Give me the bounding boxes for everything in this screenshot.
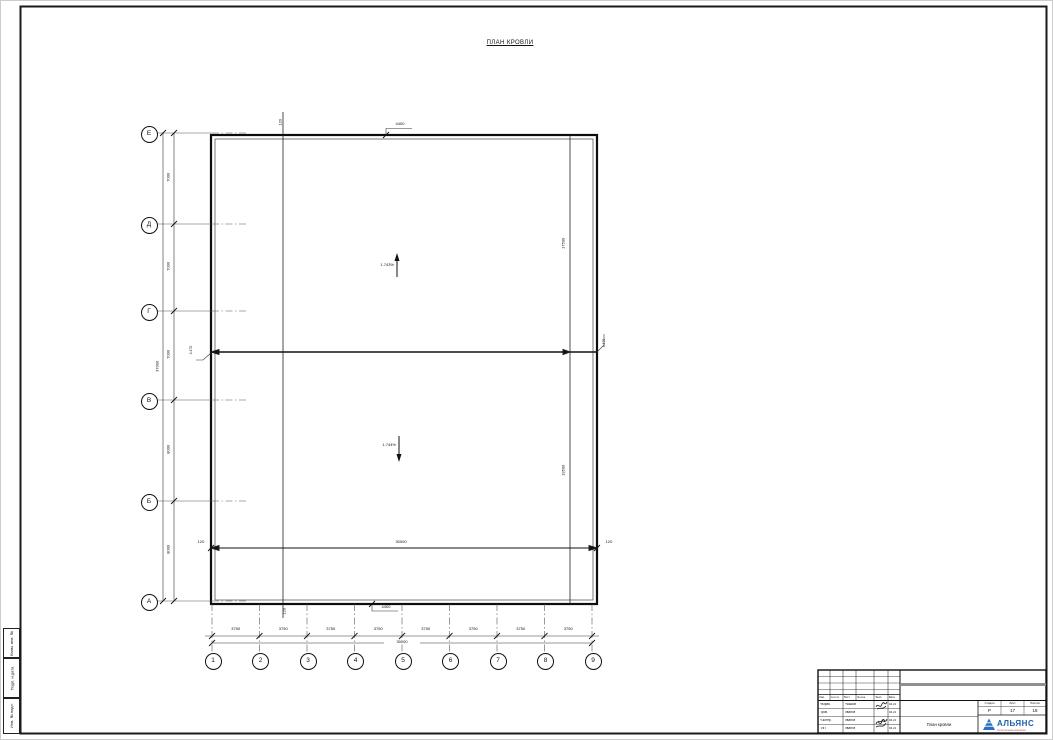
ridge-mark-right: 4.470	[602, 331, 606, 355]
stamp-role: ГИП	[820, 727, 826, 730]
stamp-date: 04.21	[889, 719, 896, 722]
dim-label-left-chain: 7000	[167, 339, 172, 369]
axis-bubble-left: Д	[141, 217, 158, 234]
sheet-title: ПЛАН КРОВЛИ	[440, 40, 580, 46]
stamp-list-value: 17	[1001, 709, 1024, 714]
leader-label-top: 4400	[388, 122, 412, 127]
stamp-role: Разраб.	[820, 703, 831, 706]
stamp-drawing-title: План кровли	[900, 723, 978, 727]
dim-label-bottom-chain: 3750	[450, 627, 498, 632]
drawing-sheet: ПЛАН КРОВЛИ Е Д Г В Б А 1 2 3 4 5 6 7 8 …	[0, 0, 1053, 740]
axis-bubble-bottom: 7	[490, 653, 507, 670]
margin-label: Взам. инв. №	[9, 631, 14, 656]
dim-label-offset: 120	[601, 540, 617, 545]
stamp-role: Пров.	[820, 711, 828, 714]
stamp-header-dok: № док.	[857, 696, 874, 699]
dim-label-offset: 120	[193, 540, 209, 545]
stamp-date: 04.21	[889, 727, 896, 730]
margin-box-inv: Инв. № подл.	[3, 698, 20, 734]
logo-text: АЛЬЯНС	[997, 719, 1034, 728]
stamp-header-podp: Подп.	[875, 696, 888, 699]
margin-label: Подп. и дата	[9, 666, 14, 690]
dim-label-bottom-chain: 3750	[260, 627, 308, 632]
axis-label: В	[147, 398, 151, 405]
stamp-date: 04.21	[889, 711, 896, 714]
dim-label-left-chain: 7000	[167, 251, 172, 281]
stamp-listov-value: 18	[1024, 709, 1046, 714]
dim-label-inner-total: 30000	[383, 540, 419, 545]
sheet-frame	[21, 7, 1047, 734]
sheet-title-text: ПЛАН КРОВЛИ	[487, 40, 534, 46]
stamp-stage-header: Стадия	[978, 702, 1001, 705]
axis-label: 5	[401, 658, 405, 665]
stamp-listov-header: Листов	[1024, 702, 1046, 705]
stamp-name: Иванов	[845, 719, 856, 722]
margin-box-podp: Подп. и дата	[3, 658, 20, 698]
dim-label-bottom-chain: 3750	[212, 627, 260, 632]
axis-bubble-bottom: 9	[585, 653, 602, 670]
axis-label: 9	[591, 658, 595, 665]
slope-label-lower: 1.744%	[368, 443, 396, 448]
axis-bubble-bottom: 4	[347, 653, 364, 670]
axis-bubble-left: Б	[141, 494, 158, 511]
dim-label-offset: 120	[282, 604, 287, 618]
dim-label-right-lower: 19500	[562, 452, 567, 488]
axis-bubble-left: Е	[141, 126, 158, 143]
dim-label-offset: 120	[279, 115, 284, 129]
axis-bubble-left: А	[141, 594, 158, 611]
axis-label: Б	[147, 499, 151, 506]
stamp-date: 04.21	[889, 703, 896, 706]
axis-label: Г	[147, 309, 151, 316]
axis-bubble-bottom: 6	[442, 653, 459, 670]
axis-label: 1	[211, 658, 215, 665]
axis-bubble-bottom: 2	[252, 653, 269, 670]
building-outline	[211, 135, 597, 604]
stamp-header-izm: Изм.	[819, 696, 830, 699]
axis-label: 6	[449, 658, 453, 665]
stamp-role: Н.контр.	[820, 719, 832, 722]
axis-label: Д	[147, 222, 151, 229]
dim-label-bottom-chain: 3750	[402, 627, 450, 632]
axis-label: А	[147, 599, 151, 606]
axis-label: 4	[354, 658, 358, 665]
stamp-stage-value: Р	[978, 709, 1001, 714]
slope-arrows	[395, 253, 402, 462]
dim-label-bottom-chain: 3750	[355, 627, 403, 632]
stamp-header-list: Лист	[844, 696, 856, 699]
dim-label-bottom-chain: 3750	[545, 627, 593, 632]
axis-label: 2	[259, 658, 263, 665]
axis-bubble-left: Г	[141, 304, 158, 321]
axis-label: 3	[306, 658, 310, 665]
axis-bubble-bottom: 1	[205, 653, 222, 670]
logo-subtitle: строительная компания	[997, 729, 1026, 732]
dim-label-bottom-chain: 3750	[307, 627, 355, 632]
leader-label-bottom: 4400	[374, 605, 398, 610]
axis-label: Е	[147, 131, 151, 138]
stamp-header-data: Дата	[889, 696, 900, 699]
dim-label-left-chain: 8000	[167, 534, 172, 564]
dim-label-left-total: 37000	[156, 348, 161, 384]
axis-label: 7	[496, 658, 500, 665]
stamp-list-header: Лист	[1001, 702, 1024, 705]
axis-bubble-bottom: 5	[395, 653, 412, 670]
axis-bubble-left: В	[141, 393, 158, 410]
stamp-name: Иванов	[845, 727, 856, 730]
axis-label: 8	[544, 658, 548, 665]
dim-label-bottom-chain: 3750	[497, 627, 545, 632]
axis-bubble-bottom: 3	[300, 653, 317, 670]
slope-label-upper: 1.743%	[366, 263, 394, 268]
dim-label-left-chain: 8000	[167, 434, 172, 464]
dim-label-left-chain: 7000	[167, 162, 172, 192]
margin-label: Инв. № подл.	[9, 703, 14, 728]
margin-box-vzam: Взам. инв. №	[3, 628, 20, 658]
dim-label-bottom-total: 30000	[384, 640, 420, 645]
dim-label-right-upper: 17500	[562, 225, 567, 261]
ridge-mark-left: 4.470	[189, 338, 193, 362]
stamp-header-kol: Кол.уч	[831, 696, 843, 699]
stamp-name: Иванов	[845, 711, 856, 714]
stamp-name: Рыжков	[845, 703, 856, 706]
axis-bubble-bottom: 8	[537, 653, 554, 670]
